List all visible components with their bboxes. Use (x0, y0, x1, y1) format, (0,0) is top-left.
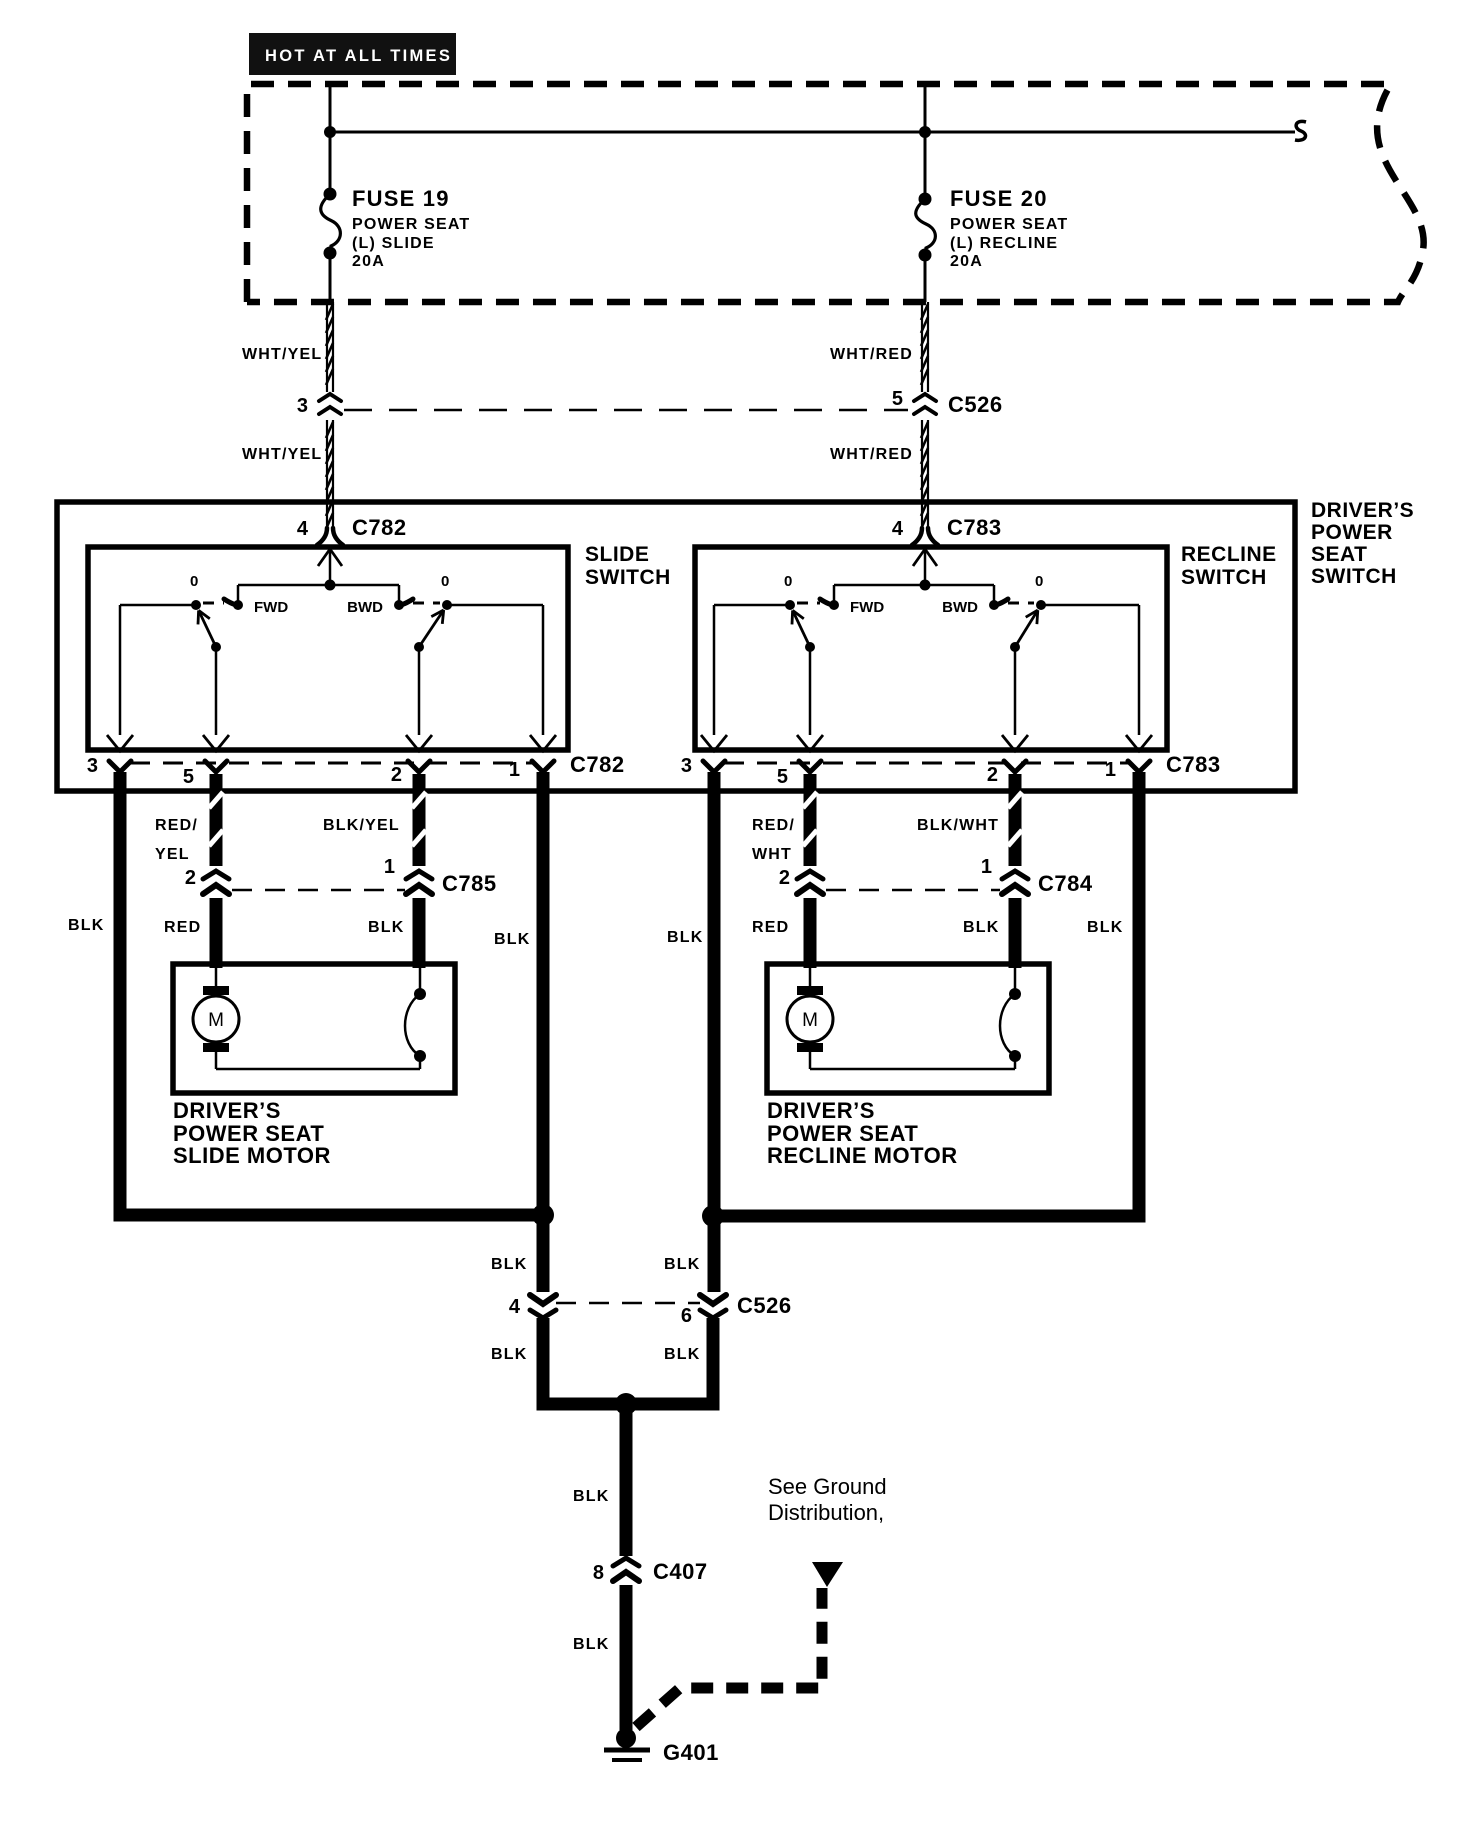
svg-text:BLK: BLK (368, 919, 404, 936)
svg-text:POWER: POWER (1311, 521, 1393, 544)
svg-text:SWITCH: SWITCH (1311, 565, 1397, 588)
svg-text:SLIDE: SLIDE (585, 543, 649, 566)
svg-text:BLK: BLK (68, 917, 104, 934)
svg-text:C526: C526 (948, 392, 1003, 417)
svg-text:BLK: BLK (1087, 919, 1123, 936)
svg-text:POWER SEAT: POWER SEAT (950, 216, 1068, 233)
svg-text:2: 2 (185, 867, 196, 889)
svg-text:20A: 20A (950, 253, 983, 270)
svg-text:C782: C782 (352, 515, 407, 540)
svg-text:BLK: BLK (573, 1636, 609, 1653)
svg-text:C782: C782 (570, 752, 625, 777)
svg-text:3: 3 (681, 755, 692, 777)
svg-text:1: 1 (1105, 759, 1116, 781)
svg-text:BLK/YEL: BLK/YEL (323, 817, 400, 834)
svg-text:WHT/YEL: WHT/YEL (242, 346, 322, 363)
svg-text:M: M (208, 1010, 224, 1031)
svg-text:DRIVER’S: DRIVER’S (173, 1098, 281, 1123)
svg-text:5: 5 (892, 388, 903, 410)
svg-text:Distribution,: Distribution, (768, 1500, 884, 1525)
svg-text:YEL: YEL (155, 846, 190, 863)
svg-text:1: 1 (509, 759, 520, 781)
svg-text:4: 4 (892, 518, 904, 540)
svg-text:DRIVER’S: DRIVER’S (767, 1098, 875, 1123)
svg-text:RED/: RED/ (155, 817, 198, 834)
svg-text:BLK: BLK (667, 929, 703, 946)
svg-text:5: 5 (183, 766, 194, 788)
svg-text:C526: C526 (737, 1293, 792, 1318)
svg-text:WHT/RED: WHT/RED (830, 346, 913, 363)
svg-text:2: 2 (779, 867, 790, 889)
svg-text:C785: C785 (442, 871, 497, 896)
svg-text:FWD: FWD (254, 599, 288, 616)
svg-text:0: 0 (1035, 573, 1043, 590)
svg-text:BLK/WHT: BLK/WHT (917, 817, 999, 834)
svg-text:(L) RECLINE: (L) RECLINE (950, 235, 1058, 252)
svg-text:WHT/RED: WHT/RED (830, 446, 913, 463)
svg-text:0: 0 (441, 573, 449, 590)
svg-text:8: 8 (593, 1562, 604, 1584)
svg-text:BWD: BWD (347, 599, 383, 616)
svg-text:SLIDE MOTOR: SLIDE MOTOR (173, 1143, 331, 1168)
svg-text:2: 2 (391, 764, 402, 786)
svg-text:20A: 20A (352, 253, 385, 270)
svg-text:FWD: FWD (850, 599, 884, 616)
svg-text:BLK: BLK (491, 1346, 527, 1363)
svg-text:BLK: BLK (664, 1256, 700, 1273)
svg-text:2: 2 (987, 764, 998, 786)
svg-text:G401: G401 (663, 1740, 719, 1765)
svg-text:RECLINE: RECLINE (1181, 543, 1277, 566)
svg-text:RED: RED (752, 919, 789, 936)
svg-text:RECLINE MOTOR: RECLINE MOTOR (767, 1143, 958, 1168)
svg-text:BWD: BWD (942, 599, 978, 616)
svg-text:BLK: BLK (494, 931, 530, 948)
svg-text:BLK: BLK (573, 1488, 609, 1505)
svg-text:SEAT: SEAT (1311, 543, 1367, 566)
svg-text:DRIVER’S: DRIVER’S (1311, 499, 1414, 522)
svg-text:See Ground: See Ground (768, 1474, 887, 1499)
svg-text:6: 6 (681, 1305, 692, 1327)
svg-text:FUSE 19: FUSE 19 (352, 186, 450, 211)
svg-text:RED/: RED/ (752, 817, 795, 834)
svg-text:3: 3 (297, 395, 308, 417)
svg-text:FUSE 20: FUSE 20 (950, 186, 1048, 211)
svg-text:RED: RED (164, 919, 201, 936)
svg-text:0: 0 (784, 573, 792, 590)
svg-text:HOT AT ALL TIMES: HOT AT ALL TIMES (265, 47, 452, 65)
svg-text:C784: C784 (1038, 871, 1093, 896)
svg-text:M: M (802, 1010, 818, 1031)
svg-text:4: 4 (509, 1296, 521, 1318)
svg-text:WHT: WHT (752, 846, 792, 863)
svg-text:C407: C407 (653, 1559, 708, 1584)
svg-text:(L) SLIDE: (L) SLIDE (352, 235, 435, 252)
svg-text:BLK: BLK (664, 1346, 700, 1363)
svg-text:WHT/YEL: WHT/YEL (242, 446, 322, 463)
svg-text:0: 0 (190, 573, 198, 590)
svg-text:C783: C783 (1166, 752, 1221, 777)
svg-text:C783: C783 (947, 515, 1002, 540)
svg-text:BLK: BLK (963, 919, 999, 936)
svg-text:5: 5 (777, 766, 788, 788)
svg-text:4: 4 (297, 518, 309, 540)
svg-text:SWITCH: SWITCH (1181, 566, 1267, 589)
svg-text:SWITCH: SWITCH (585, 566, 671, 589)
svg-text:3: 3 (87, 755, 98, 777)
svg-text:POWER SEAT: POWER SEAT (352, 216, 470, 233)
svg-text:1: 1 (981, 856, 992, 878)
svg-text:1: 1 (384, 856, 395, 878)
svg-text:BLK: BLK (491, 1256, 527, 1273)
